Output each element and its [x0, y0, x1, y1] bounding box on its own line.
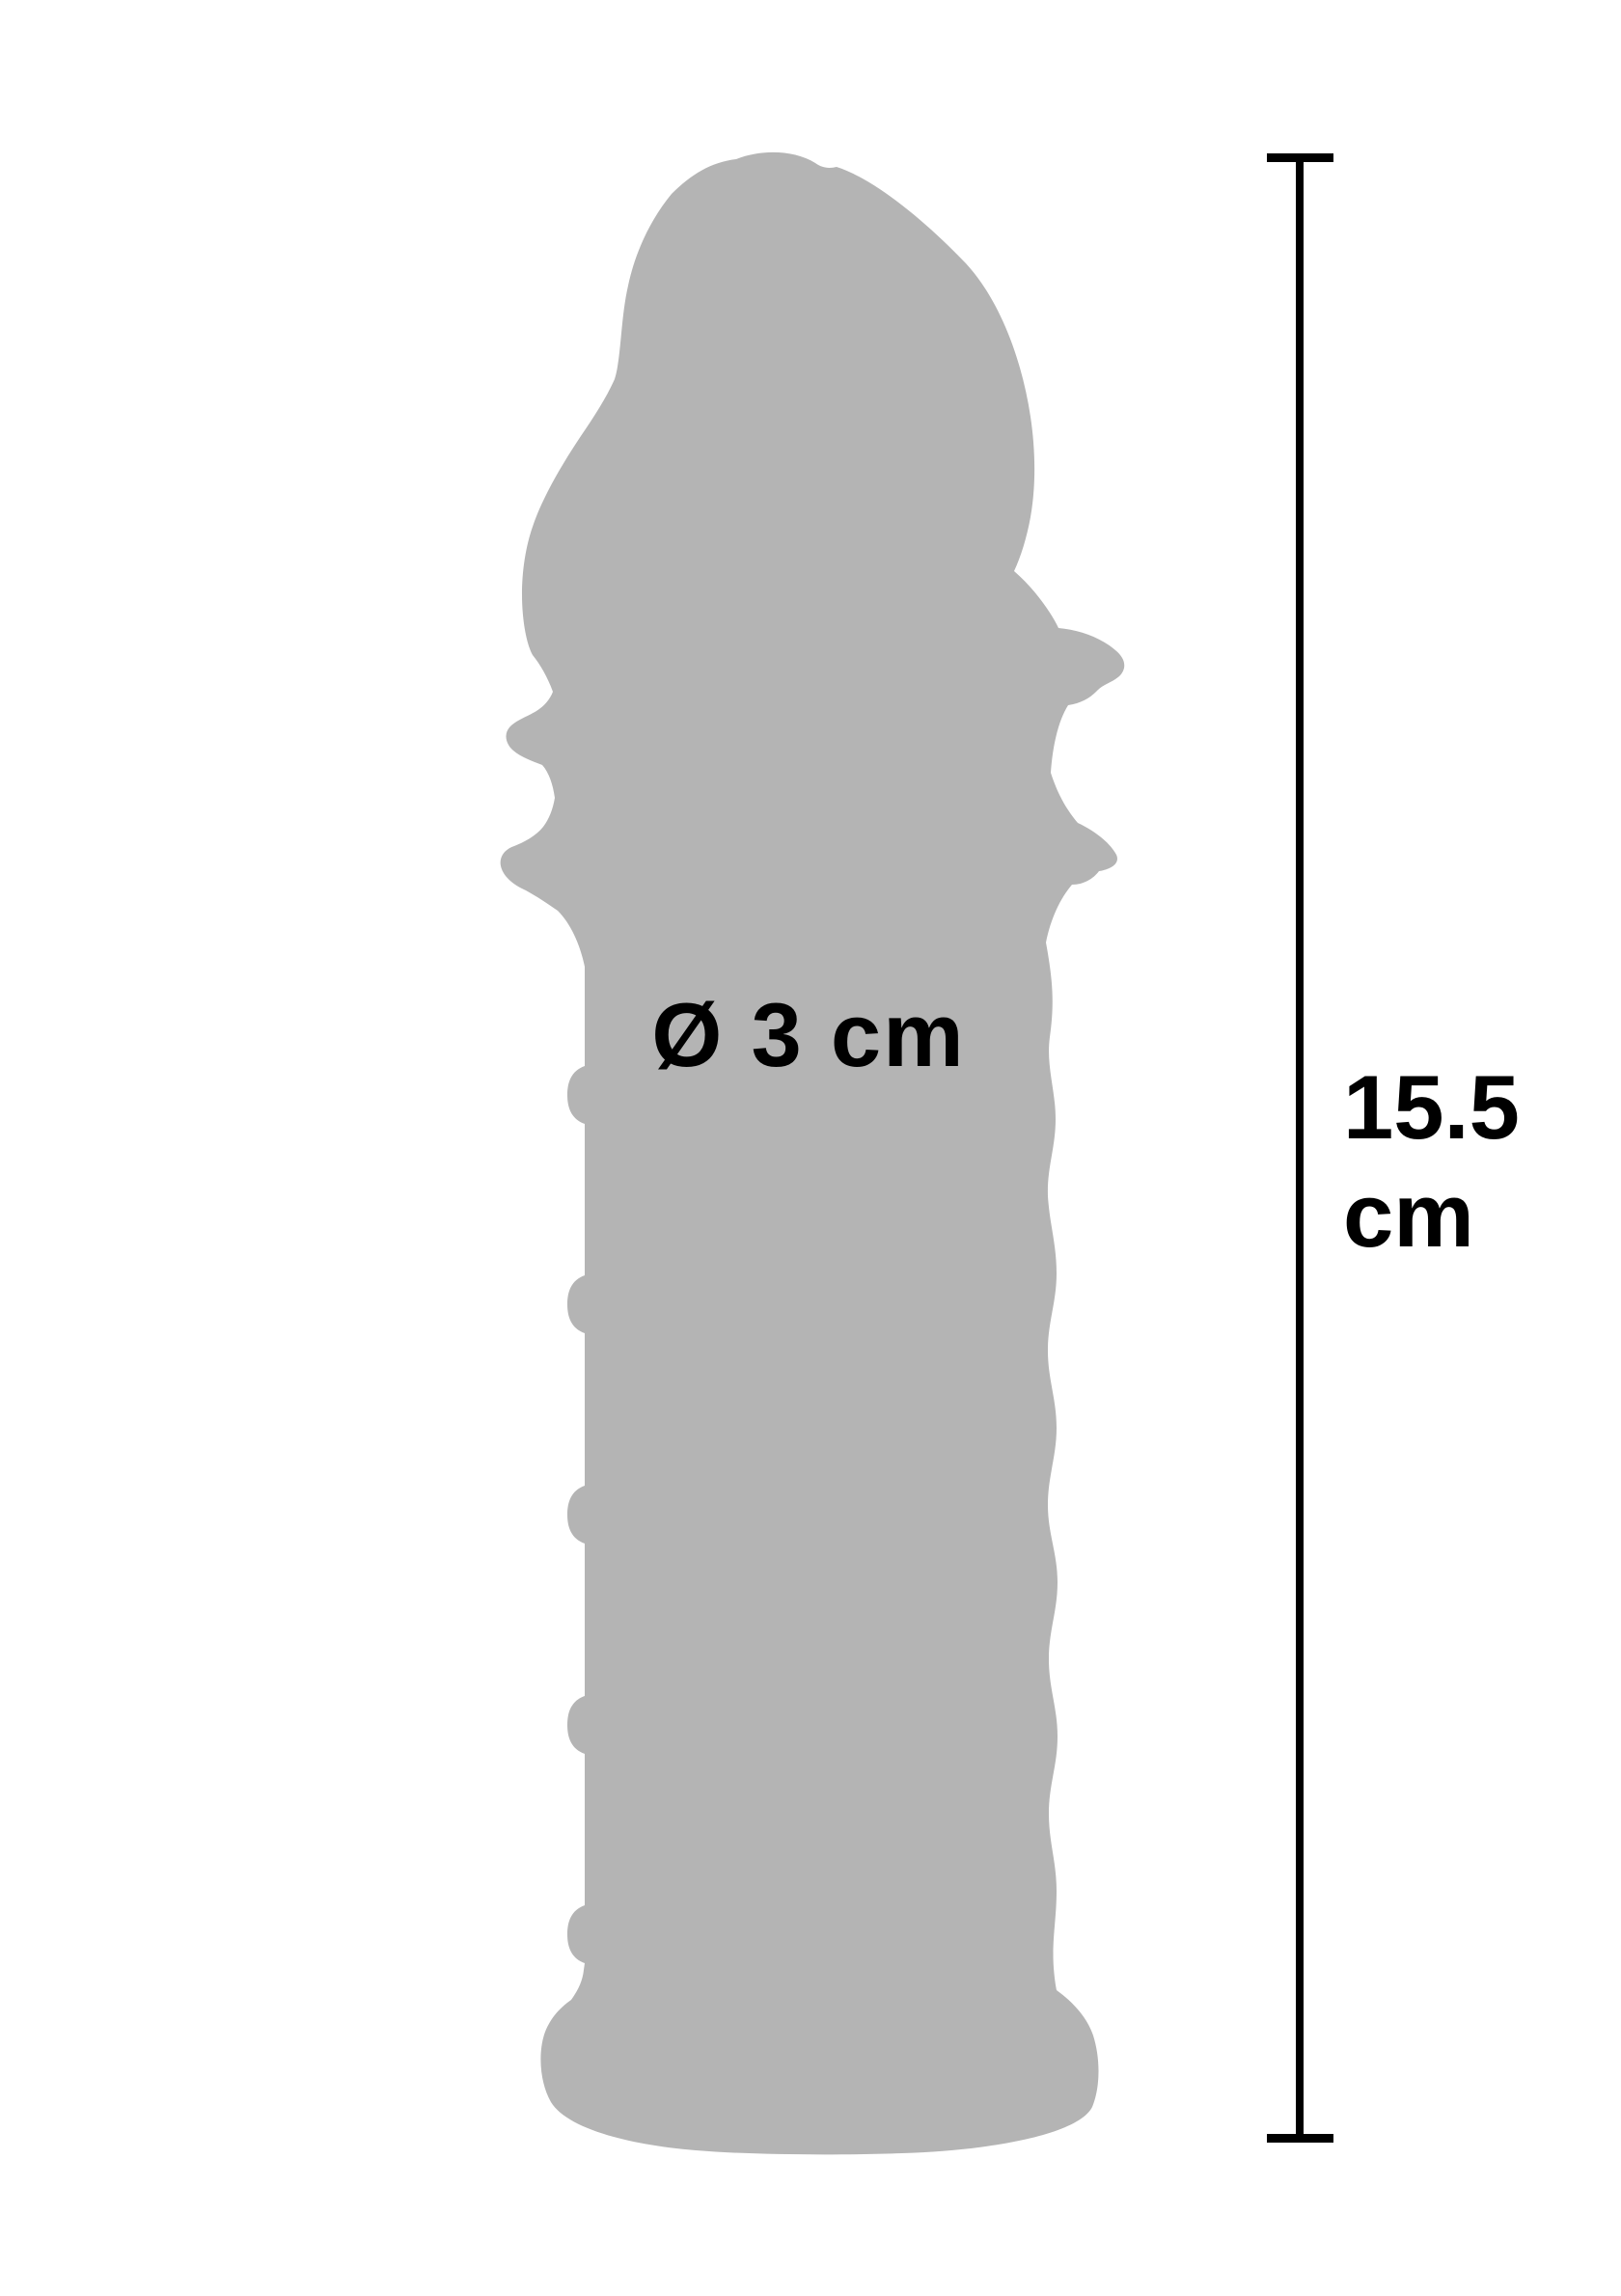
dimension-line-bottom-cap — [1267, 2134, 1333, 2143]
product-dimension-diagram: Ø 3 cm 15.5 cm — [0, 0, 1621, 2296]
dimension-line — [1267, 153, 1333, 2143]
length-value: 15.5 — [1343, 1053, 1520, 1162]
length-unit: cm — [1343, 1162, 1520, 1270]
product-silhouette — [501, 152, 1125, 2154]
length-label: 15.5 cm — [1343, 1053, 1520, 1270]
dimension-line-vertical — [1296, 157, 1304, 2139]
diameter-label: Ø 3 cm — [616, 982, 1002, 1088]
